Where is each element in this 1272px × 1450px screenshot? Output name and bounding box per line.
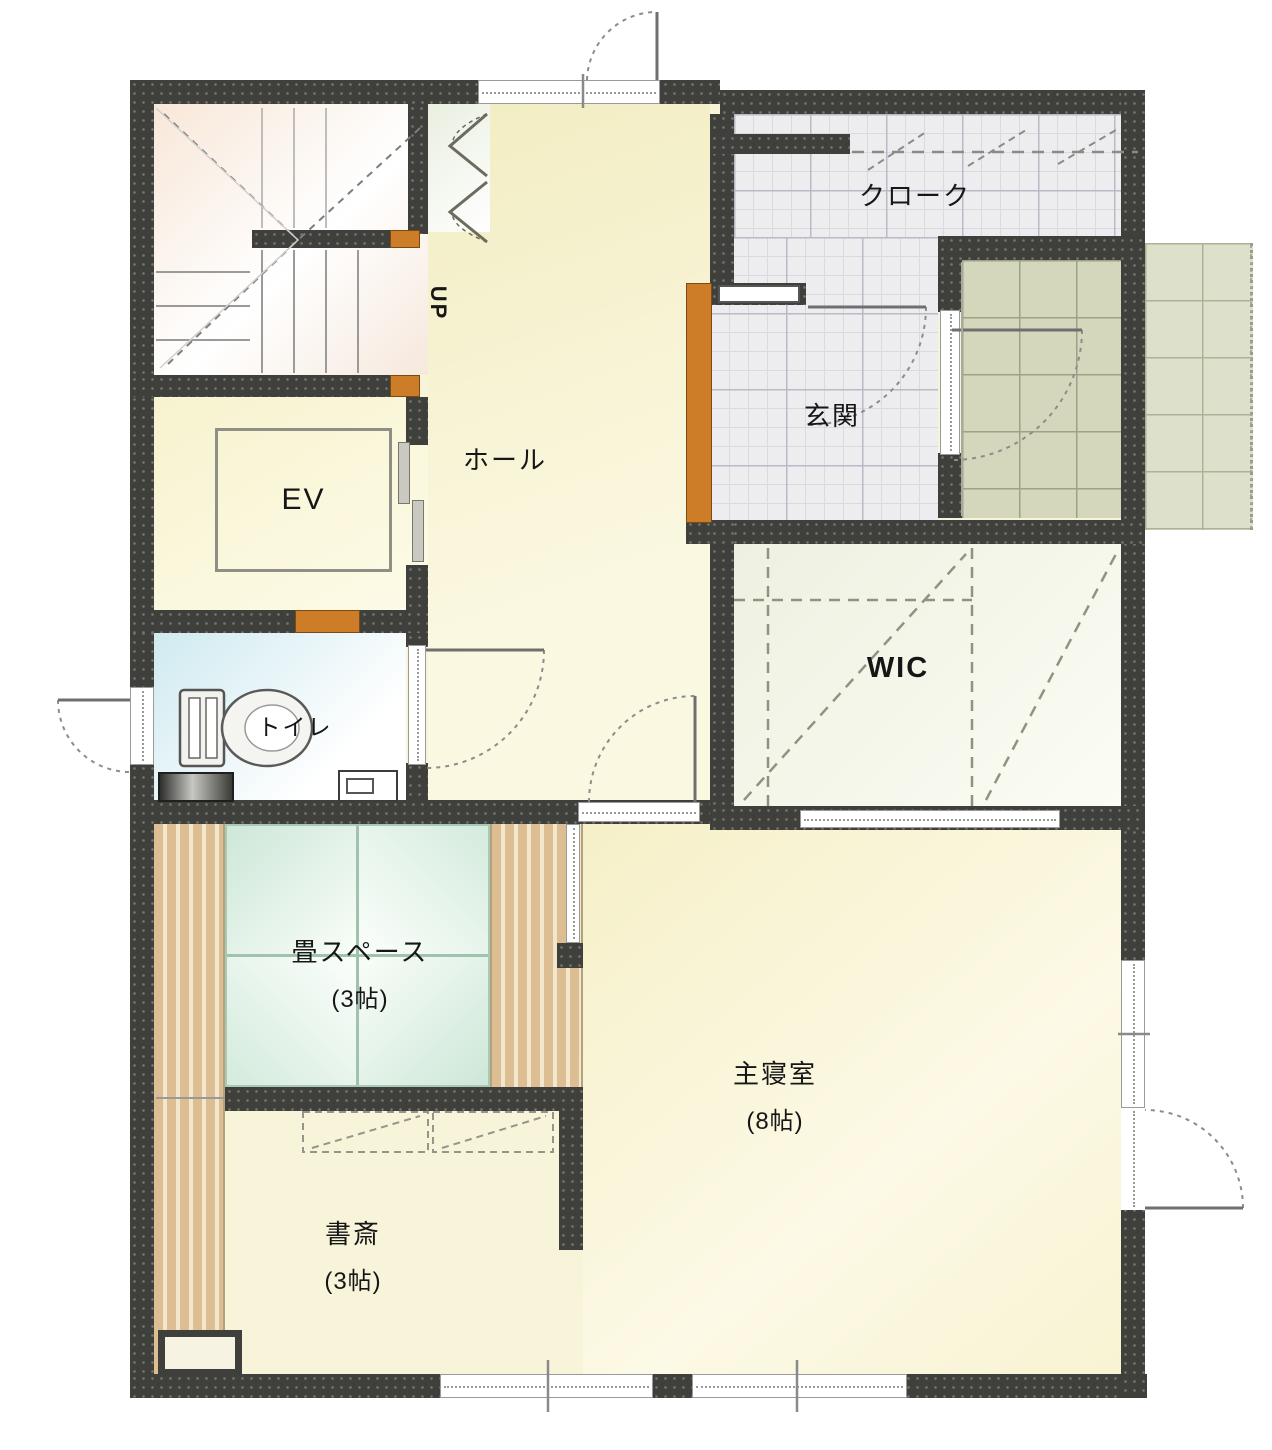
room-wic-label-text: WIC bbox=[867, 652, 929, 684]
wall-wic-top bbox=[686, 520, 1145, 544]
window-bedroom-right bbox=[1121, 960, 1145, 1108]
post-genkan-left bbox=[686, 283, 712, 523]
wall-ev-bottom-left bbox=[130, 610, 295, 633]
elevator-cab-outline: EV bbox=[215, 428, 392, 572]
room-cloak-label: クローク bbox=[845, 176, 985, 213]
room-entrance-label: 玄関 bbox=[780, 396, 884, 433]
door-bedroom-right-opening bbox=[1121, 1108, 1145, 1210]
stairs-up-label: UP bbox=[425, 280, 451, 326]
room-hall-label-text: ホール bbox=[463, 445, 547, 475]
study-corner-niche bbox=[158, 1330, 242, 1376]
wall-ev-right-upper bbox=[406, 397, 428, 445]
door-toilet-track bbox=[408, 645, 426, 765]
post-ev-bottom bbox=[295, 610, 360, 633]
wall-stair-mid-rail bbox=[252, 230, 392, 248]
room-entrance-floor bbox=[710, 237, 938, 520]
hall-closet-floor bbox=[428, 104, 490, 232]
wall-tatami-bottom bbox=[225, 1087, 583, 1111]
toilet-counter bbox=[158, 772, 234, 802]
room-tatami-size-text: (3帖) bbox=[240, 979, 480, 1014]
room-elevator-label: EV bbox=[281, 483, 325, 517]
room-wic-label: WIC bbox=[838, 652, 958, 685]
room-tatami-label-text: 畳スペース bbox=[292, 937, 429, 967]
room-bedroom-label: 主寝室 (8帖) bbox=[640, 1054, 910, 1136]
room-cloak-label-text: クローク bbox=[859, 181, 971, 211]
room-study-label-text: 書斎 bbox=[325, 1219, 381, 1249]
room-tatami-label: 畳スペース (3帖) bbox=[240, 932, 480, 1014]
wall-divider-post bbox=[557, 943, 583, 968]
opening-wic-bottom bbox=[800, 810, 1060, 828]
door-hall-bedroom-track bbox=[578, 802, 700, 822]
wall-stair-closet-divider bbox=[408, 104, 428, 234]
wall-toilet-right-lower bbox=[406, 763, 428, 803]
wall-cloak-stub bbox=[710, 134, 850, 154]
wall-ev-bottom-right bbox=[360, 610, 428, 633]
room-study-label: 書斎 (3帖) bbox=[233, 1214, 473, 1296]
room-toilet-label-text: トイレ bbox=[258, 714, 333, 740]
entrance-porch-floor bbox=[962, 260, 1121, 518]
wall-outer-top-right bbox=[720, 90, 1145, 114]
window-bottom-right bbox=[692, 1374, 907, 1398]
counter-cloak bbox=[718, 285, 800, 303]
wall-stair-bottom bbox=[130, 375, 390, 397]
room-hall-label: ホール bbox=[445, 440, 565, 477]
ev-sliding-door-panel bbox=[412, 500, 424, 562]
entrance-porch-outside bbox=[1145, 243, 1253, 530]
door-genkan-track bbox=[940, 310, 960, 455]
wall-genkan-right-lower bbox=[938, 453, 962, 518]
ev-sliding-door-panel bbox=[398, 442, 410, 504]
arc-toilet-exterior-door bbox=[58, 700, 130, 772]
wall-porch-top bbox=[938, 236, 1145, 260]
room-bedroom-label-text: 主寝室 bbox=[733, 1059, 817, 1089]
wood-deck-strip-left bbox=[154, 824, 225, 1374]
arc-bedroom-exterior-door bbox=[1145, 1110, 1243, 1208]
room-toilet-label: トイレ bbox=[240, 708, 350, 742]
wall-genkan-right-upper bbox=[938, 260, 962, 312]
track-tatami-bedroom bbox=[566, 824, 580, 943]
stairs-up-label-text: UP bbox=[426, 286, 451, 321]
room-bedroom-size-text: (8帖) bbox=[640, 1101, 910, 1136]
room-study-size-text: (3帖) bbox=[233, 1261, 473, 1296]
post-stair-rail-end bbox=[390, 230, 420, 248]
window-bottom-left bbox=[440, 1374, 653, 1398]
room-entrance-label-text: 玄関 bbox=[804, 401, 860, 431]
door-toilet-exterior-opening bbox=[130, 687, 154, 765]
toilet-washbasin bbox=[338, 770, 398, 802]
post-stair-bottom-end bbox=[390, 375, 420, 397]
floor-plan-canvas: EV bbox=[0, 0, 1272, 1450]
wall-wic-left bbox=[710, 520, 734, 830]
arc-entry-top-door bbox=[587, 12, 657, 80]
window-hall-top bbox=[478, 80, 660, 104]
wall-study-right bbox=[559, 1087, 583, 1250]
